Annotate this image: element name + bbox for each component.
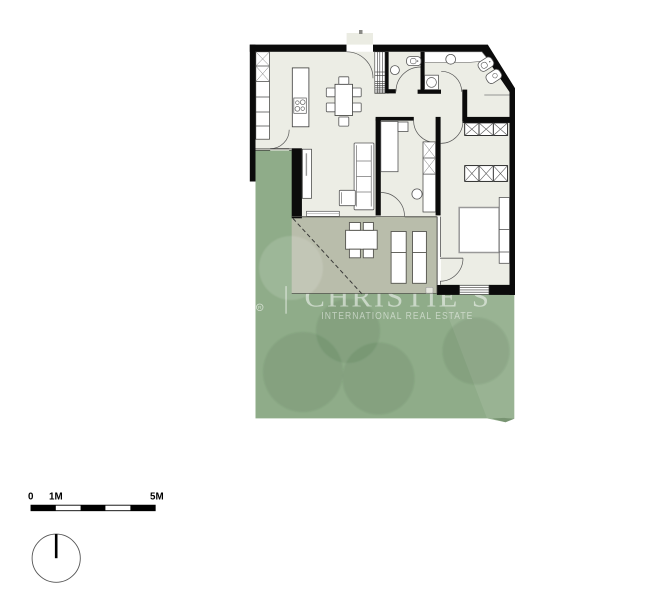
svg-text:INTERNATIONAL REAL ESTATE: INTERNATIONAL REAL ESTATE <box>321 311 473 322</box>
svg-text:1M: 1M <box>49 492 63 503</box>
svg-text:0: 0 <box>28 492 34 503</box>
svg-text:R: R <box>258 305 262 311</box>
svg-text:5M: 5M <box>150 492 164 503</box>
